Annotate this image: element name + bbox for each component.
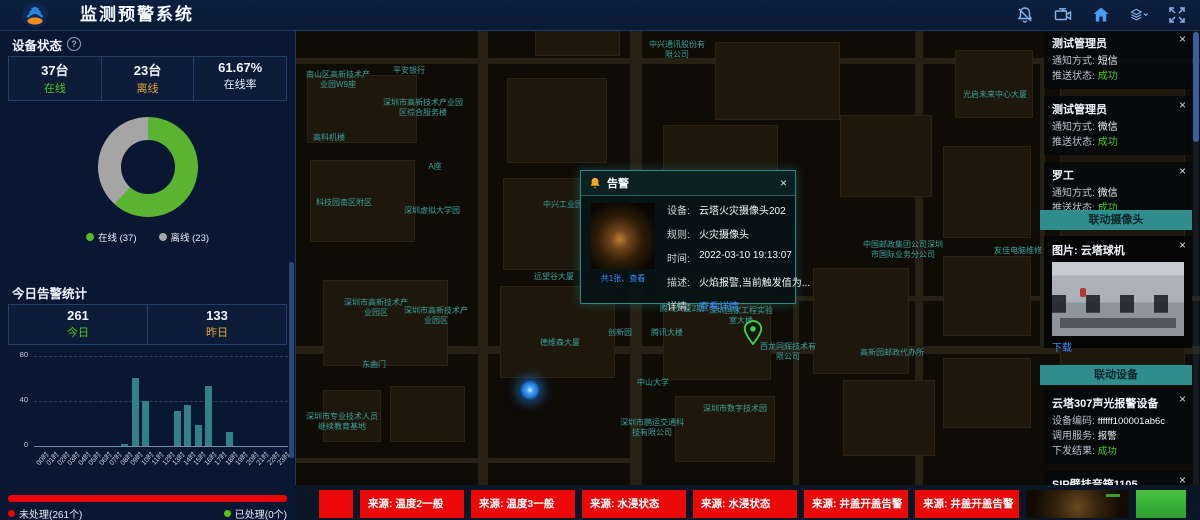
axis-baseline	[34, 446, 288, 447]
field-value: 成功	[1098, 137, 1118, 148]
stat-label: 昨日	[148, 324, 286, 340]
map-label: 中国邮政集团公司深圳市国际业务分公司	[861, 240, 945, 260]
stat-today: 261 今日	[9, 305, 147, 344]
map-building	[943, 358, 1031, 428]
notification-name: 测试管理员	[1052, 35, 1184, 51]
map-building	[535, 30, 620, 56]
processed-label: 已处理(0个)	[235, 506, 287, 520]
legend-dot-icon	[159, 233, 167, 241]
hourly-bar-chart: 80 40 0 00时01时02时03时04时05时06时07时08时09时10…	[0, 349, 295, 495]
map-label: 光启未来中心大厦	[955, 90, 1035, 100]
device-status-title: 设备状态 ?	[12, 36, 295, 52]
notification-row: 通知方式:短信	[1052, 54, 1184, 69]
y-tick: 0	[2, 440, 28, 449]
camera-snapshot[interactable]	[1052, 262, 1184, 336]
map-label: 南山区高新技术产业园W9座	[303, 70, 373, 90]
map-building	[840, 115, 932, 197]
thumbnail-caption-link[interactable]: 共1张、查看	[587, 273, 659, 284]
device-card: 云塔307声光报警设备×设备编码:ffffff100001ab6c调用服务:报警…	[1044, 390, 1192, 464]
alert-source-tile[interactable]: 来源: 水浸状态	[693, 490, 797, 518]
notification-card: 测试管理员×通知方式:短信推送状态:成功	[1044, 30, 1192, 89]
unprocessed-label: 未处理(261个)	[19, 506, 82, 520]
camera-card: 图片: 云塔球机 × 下载	[1044, 236, 1192, 348]
close-icon[interactable]: ×	[1179, 99, 1186, 111]
map-building	[943, 146, 1031, 238]
map-building	[507, 78, 607, 163]
map-label: 德维森大厦	[533, 338, 587, 348]
device-row: 调用服务:报警	[1052, 429, 1184, 444]
red-dot-icon	[8, 510, 15, 517]
stat-value: 133	[148, 308, 286, 323]
header-toolbar	[1016, 0, 1186, 30]
page-title: 监测预警系统	[80, 0, 194, 30]
bar	[226, 432, 233, 446]
field-label: 规则:	[667, 226, 699, 241]
bar	[184, 405, 191, 446]
section-label: 设备状态	[12, 35, 62, 54]
bar	[174, 411, 181, 446]
legend-label: 在线 (37)	[98, 230, 137, 244]
right-scrollbar-thumb[interactable]	[1193, 32, 1199, 142]
notification-row: 通知方式:微信	[1052, 120, 1184, 135]
left-panel: 设备状态 ? 37台 在线 23台 离线 61.67% 在线率 在线 (37)离…	[0, 30, 296, 520]
field-value: 2022-03-10 19:13:07	[699, 250, 792, 265]
notification-name: 测试管理员	[1052, 101, 1184, 117]
map-label: 深圳市高新技术产业园区综合服务楼	[383, 98, 463, 118]
home-icon[interactable]	[1092, 6, 1110, 24]
map-label: 深圳市鹏运交通科技有限公司	[617, 418, 687, 438]
field-value: 报警	[1098, 431, 1117, 442]
close-icon[interactable]: ×	[1179, 33, 1186, 45]
map-label: 科技园南区附区	[307, 198, 381, 208]
stat-value: 261	[9, 308, 147, 323]
notification-name: 罗工	[1052, 167, 1184, 183]
map-label: 高新园邮政代办所	[851, 348, 933, 358]
map-road	[478, 30, 488, 485]
section-label: 今日告警统计	[12, 283, 87, 302]
alert-detail-rows: 设备: 云塔火灾摄像头202 规则: 火灾摄像头 时间: 2022-03-10 …	[667, 202, 810, 313]
map-label: 高科机楼	[307, 133, 351, 143]
map-building	[943, 256, 1031, 336]
camera-card-title: 图片: 云塔球机	[1052, 245, 1125, 257]
green-dot-icon	[224, 510, 231, 517]
field-label: 时间:	[667, 250, 699, 265]
download-link[interactable]: 下载	[1052, 339, 1184, 354]
device-status-table: 37台 在线 23台 离线 61.67% 在线率	[8, 56, 287, 101]
detail-row: 时间: 2022-03-10 19:13:07	[667, 250, 810, 265]
app-header: 监测预警系统	[0, 0, 1200, 31]
alarm-bell-icon	[589, 177, 601, 190]
map-label: 深圳市专业技术人员继续教育基地	[303, 412, 381, 432]
notification-row: 推送状态:成功	[1052, 135, 1184, 150]
stat-label: 今日	[9, 324, 147, 340]
location-pin-icon[interactable]	[742, 318, 764, 348]
detail-row: 描述: 火焰报警,当前触发值为...	[667, 274, 810, 289]
alert-popup-header: 告警 ×	[581, 171, 795, 196]
stat-value: 23台	[102, 60, 194, 79]
notification-row: 推送状态:成功	[1052, 69, 1184, 84]
stat-value: 61.67%	[194, 60, 286, 75]
stat-offline: 23台 离线	[101, 57, 194, 100]
notification-card: 测试管理员×通知方式:微信推送状态:成功	[1044, 96, 1192, 155]
chevron-down-icon	[1144, 14, 1148, 16]
detail-row: 规则: 火灾摄像头	[667, 226, 810, 241]
stat-online: 37台 在线	[9, 57, 101, 100]
field-value: 云塔火灾摄像头202	[699, 202, 786, 217]
legend-label: 离线 (23)	[171, 230, 210, 244]
stat-value: 37台	[9, 60, 101, 79]
field-label: 设备:	[667, 202, 699, 217]
field-value: 微信	[1098, 188, 1118, 199]
view-details-link[interactable]: 查看详情	[699, 298, 739, 313]
alert-ticker: 来源: 温度2一般来源: 温度3一般来源: 水浸状态来源: 水浸状态来源: 井盖…	[295, 485, 1200, 520]
alert-source-tile[interactable]: 来源: 水浸状态	[582, 490, 686, 518]
field-value: 火焰报警,当前触发值为...	[699, 274, 810, 289]
map-label: 腾讯大楼	[645, 328, 689, 338]
map-label: 东曲门	[357, 360, 391, 370]
today-alerts-title: 今日告警统计	[12, 280, 295, 300]
stat-online-rate: 61.67% 在线率	[193, 57, 286, 100]
field-label: 详情:	[667, 298, 699, 313]
bar	[205, 386, 212, 446]
field-value: 成功	[1098, 71, 1118, 82]
alert-source-tile[interactable]: 来源: 温度2一般	[360, 490, 464, 518]
map-building	[813, 268, 909, 374]
field-label: 描述:	[667, 274, 699, 289]
close-icon[interactable]: ×	[1179, 393, 1186, 405]
device-legend: 在线 (37)离线 (23)	[0, 230, 295, 244]
stat-label: 离线	[102, 80, 194, 96]
field-value: 微信	[1098, 122, 1118, 133]
alert-popup: 告警 × 共1张、查看 设备: 云塔火灾摄像头202 规则: 火灾摄像头 时间:…	[580, 170, 796, 304]
left-panel-scrollbar[interactable]	[289, 262, 294, 458]
linked-camera-header: 联动摄像头	[1040, 210, 1192, 230]
snapshot-figure	[1080, 288, 1086, 297]
map-label: 深圳虚拟大学园	[395, 206, 469, 216]
processed-legend: 未处理(261个) 已处理(0个)	[0, 506, 295, 520]
alert-marker-dot[interactable]	[519, 379, 541, 401]
bar	[132, 378, 139, 446]
close-icon[interactable]: ×	[1179, 239, 1186, 251]
detail-row: 详情: 查看详情	[667, 298, 810, 313]
map-label: 深圳市高新技术产业园区	[403, 306, 469, 326]
app-logo	[22, 2, 48, 28]
alert-source-tile[interactable]: 来源: 井盖开盖告警	[804, 490, 908, 518]
bell-off-icon[interactable]	[1016, 6, 1034, 24]
map-building	[955, 50, 1033, 118]
legend-item: 离线 (23)	[159, 230, 210, 244]
field-value: ffffff100001ab6c	[1098, 416, 1165, 427]
alert-source-tile[interactable]: 来源: 温度3一般	[471, 490, 575, 518]
bar	[142, 401, 149, 446]
device-row: 下发结果:成功	[1052, 444, 1184, 459]
map-label: 友佳电脑维修	[987, 246, 1049, 256]
close-icon[interactable]: ×	[780, 177, 787, 189]
alert-popup-title: 告警	[607, 175, 629, 191]
close-icon[interactable]: ×	[1179, 165, 1186, 177]
linked-device-header: 联动设备	[1040, 365, 1192, 385]
map-label: 远望谷大厦	[527, 272, 581, 282]
alert-thumbnail-fire[interactable]	[1026, 490, 1129, 518]
detail-row: 设备: 云塔火灾摄像头202	[667, 202, 810, 217]
map-road	[295, 458, 640, 463]
map-label: 中山大学	[631, 378, 675, 388]
fire-snapshot-thumbnail[interactable]	[591, 203, 655, 269]
map-label: 深圳市数字技术园	[693, 404, 777, 414]
map-label: 平安银行	[387, 66, 431, 76]
map-road	[793, 300, 799, 485]
processed-item: 已处理(0个)	[224, 506, 287, 520]
map-label: 深圳市高新技术产业园区	[343, 298, 409, 318]
device-name: 云塔307声光报警设备	[1052, 395, 1184, 411]
today-alerts-table: 261 今日 133 昨日	[8, 304, 287, 345]
field-value: 短信	[1098, 56, 1118, 67]
unprocessed-item: 未处理(261个)	[8, 506, 82, 520]
layers-icon[interactable]	[1130, 6, 1148, 24]
map-label: 中兴通讯股份有限公司	[647, 40, 707, 60]
map-label: 创新园	[603, 328, 637, 338]
notification-row: 通知方式:微信	[1052, 186, 1184, 201]
map-building	[390, 386, 465, 442]
stat-label: 在线	[9, 80, 101, 96]
device-row: 设备编码:ffffff100001ab6c	[1052, 414, 1184, 429]
alert-source-tile[interactable]	[319, 490, 353, 518]
alert-source-tile[interactable]: 来源: 井盖开盖告警	[915, 490, 1019, 518]
fullscreen-icon[interactable]	[1168, 6, 1186, 24]
field-value: 成功	[1098, 446, 1117, 457]
legend-item: 在线 (37)	[86, 230, 137, 244]
gridline-80	[34, 356, 288, 357]
help-icon[interactable]: ?	[67, 37, 81, 51]
map-label: A座	[423, 162, 447, 172]
device-donut	[98, 117, 198, 217]
stat-yesterday: 133 昨日	[147, 305, 286, 344]
stat-label: 在线率	[194, 76, 286, 92]
map-building	[843, 380, 935, 456]
snapshot-desk	[1060, 318, 1176, 328]
device-donut-chart	[98, 117, 198, 217]
notification-stack: 测试管理员×通知方式:短信推送状态:成功测试管理员×通知方式:微信推送状态:成功…	[1044, 30, 1192, 221]
unprocessed-bar	[8, 495, 287, 502]
map-label: 西龙同辉技术有限公司	[757, 342, 819, 362]
legend-dot-icon	[86, 233, 94, 241]
alert-thumbnail-green[interactable]	[1136, 490, 1186, 518]
camera-icon[interactable]	[1054, 6, 1072, 24]
bar	[121, 444, 128, 446]
map-building	[715, 42, 840, 120]
field-value: 火灾摄像头	[699, 226, 749, 241]
y-tick: 80	[2, 350, 28, 359]
gridline-40	[34, 401, 288, 402]
y-tick: 40	[2, 395, 28, 404]
bar	[195, 425, 202, 446]
